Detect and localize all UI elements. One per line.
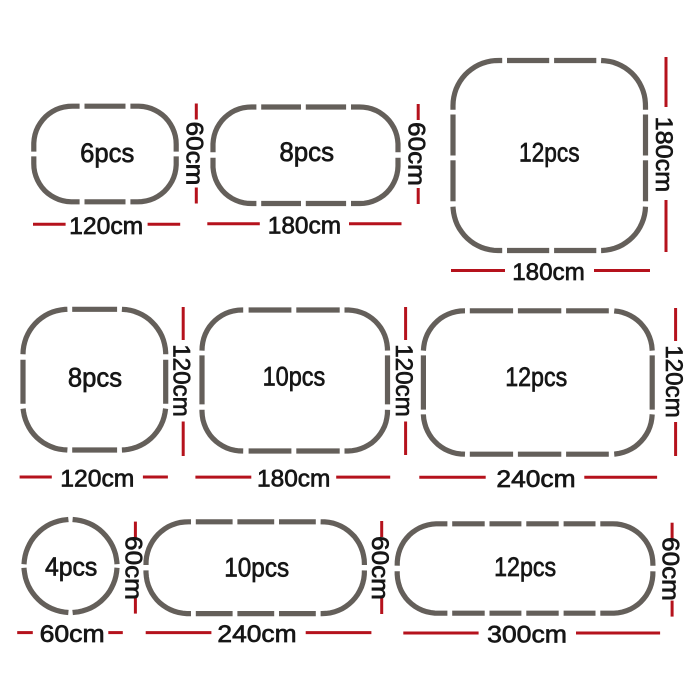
svg-text:240cm: 240cm — [496, 466, 575, 493]
svg-text:60cm: 60cm — [120, 536, 147, 600]
svg-text:120cm: 120cm — [60, 466, 134, 493]
svg-text:8pcs: 8pcs — [279, 137, 334, 168]
svg-text:300cm: 300cm — [487, 622, 567, 649]
svg-text:180cm: 180cm — [257, 466, 330, 493]
svg-text:60cm: 60cm — [657, 537, 684, 601]
svg-text:60cm: 60cm — [40, 621, 105, 648]
svg-text:120cm: 120cm — [167, 344, 194, 417]
svg-text:10pcs: 10pcs — [224, 553, 289, 582]
svg-text:4pcs: 4pcs — [45, 553, 97, 582]
svg-text:180cm: 180cm — [512, 259, 585, 286]
svg-text:180cm: 180cm — [268, 213, 341, 240]
svg-text:60cm: 60cm — [366, 536, 393, 600]
svg-text:10pcs: 10pcs — [263, 362, 326, 392]
svg-text:120cm: 120cm — [660, 345, 687, 418]
svg-text:60cm: 60cm — [403, 122, 430, 186]
svg-text:60cm: 60cm — [181, 122, 208, 186]
svg-text:240cm: 240cm — [217, 621, 296, 648]
svg-text:180cm: 180cm — [650, 117, 676, 193]
svg-text:12pcs: 12pcs — [519, 138, 580, 168]
svg-text:12pcs: 12pcs — [505, 363, 567, 393]
svg-text:8pcs: 8pcs — [68, 362, 122, 393]
svg-text:120cm: 120cm — [390, 344, 417, 417]
svg-text:12pcs: 12pcs — [494, 553, 556, 583]
svg-text:6pcs: 6pcs — [80, 137, 134, 168]
svg-text:120cm: 120cm — [69, 213, 143, 240]
